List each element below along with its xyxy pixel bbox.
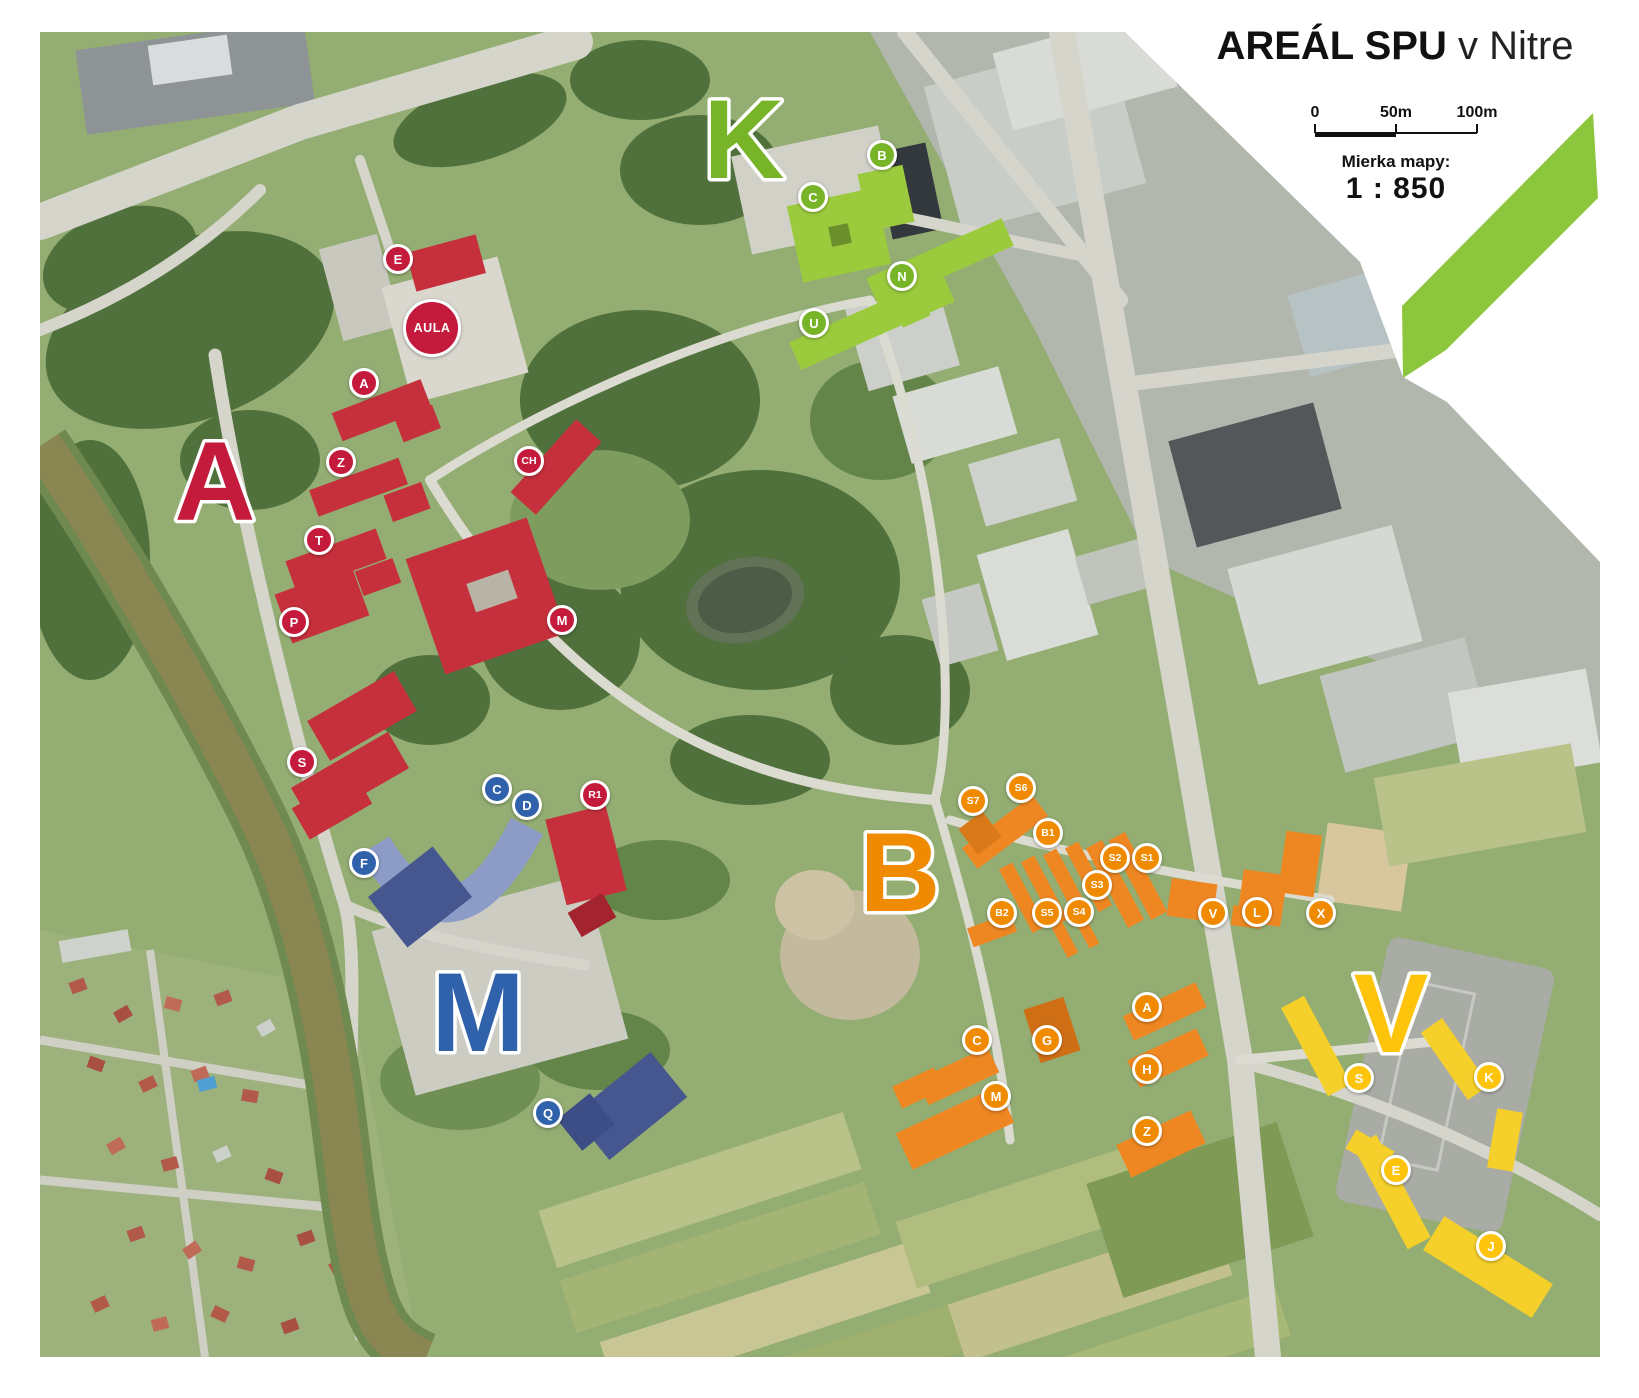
scale-ratio: 1 : 850: [1315, 172, 1477, 206]
map-marker-orange-G[interactable]: G: [1032, 1025, 1062, 1055]
map-marker-red-Z[interactable]: Z: [326, 447, 356, 477]
title-bold: AREÁL SPU: [1216, 24, 1446, 68]
map-marker-blue-D[interactable]: D: [512, 790, 542, 820]
map-marker-orange-S5[interactable]: S5: [1032, 898, 1062, 928]
map-marker-blue-F[interactable]: F: [349, 848, 379, 878]
map-marker-red-M[interactable]: M: [547, 605, 577, 635]
map-marker-orange-B2[interactable]: B2: [987, 898, 1017, 928]
map-marker-red-AULA[interactable]: AULA: [403, 299, 461, 357]
map-marker-blue-Q[interactable]: Q: [533, 1098, 563, 1128]
scale-label-50: 50m: [1380, 104, 1412, 122]
title-block: AREÁL SPU v Nitre: [1180, 24, 1610, 68]
map-marker-red-P[interactable]: P: [279, 607, 309, 637]
section-letter-A: A: [175, 419, 256, 544]
map-marker-orange-M[interactable]: M: [981, 1081, 1011, 1111]
map-marker-orange-S2[interactable]: S2: [1100, 843, 1130, 873]
map-marker-red-T[interactable]: T: [304, 525, 334, 555]
map-marker-orange-X[interactable]: X: [1306, 898, 1336, 928]
map-marker-orange-S1[interactable]: S1: [1132, 843, 1162, 873]
map-marker-green-N[interactable]: N: [887, 261, 917, 291]
page-title: AREÁL SPU v Nitre: [1180, 24, 1610, 68]
map-marker-red-S[interactable]: S: [287, 747, 317, 777]
section-letter-V: V: [1354, 951, 1429, 1076]
map-marker-orange-S7[interactable]: S7: [958, 786, 988, 816]
section-letter-B: B: [860, 810, 941, 935]
section-letter-M: M: [431, 950, 524, 1075]
map-marker-yellow-S[interactable]: S: [1344, 1063, 1374, 1093]
map-marker-orange-S4[interactable]: S4: [1064, 897, 1094, 927]
map-marker-red-CH[interactable]: CH: [514, 446, 544, 476]
campus-map-poster: AKBMV EAULAAZCHTPMSR1CDFQBCNUS7S6B1S2S1S…: [0, 0, 1639, 1398]
map-marker-green-C[interactable]: C: [798, 182, 828, 212]
map-marker-orange-A[interactable]: A: [1132, 992, 1162, 1022]
map-marker-green-U[interactable]: U: [799, 308, 829, 338]
map-marker-yellow-J[interactable]: J: [1476, 1231, 1506, 1261]
scale-label-0: 0: [1311, 104, 1320, 122]
map-marker-orange-C[interactable]: C: [962, 1025, 992, 1055]
map-marker-yellow-K[interactable]: K: [1474, 1062, 1504, 1092]
map-marker-red-A[interactable]: A: [349, 368, 379, 398]
map-marker-yellow-E[interactable]: E: [1381, 1155, 1411, 1185]
map-marker-orange-L[interactable]: L: [1242, 897, 1272, 927]
scale-label-100: 100m: [1457, 104, 1498, 122]
map-marker-orange-S6[interactable]: S6: [1006, 773, 1036, 803]
map-marker-orange-Z[interactable]: Z: [1132, 1116, 1162, 1146]
scale-bar: 0 50m 100m: [1315, 104, 1477, 140]
map-marker-green-B[interactable]: B: [867, 140, 897, 170]
title-rest: v Nitre: [1447, 24, 1574, 68]
map-marker-orange-H[interactable]: H: [1132, 1054, 1162, 1084]
scale-caption: Mierka mapy:: [1315, 152, 1477, 172]
map-marker-red-E[interactable]: E: [383, 244, 413, 274]
map-marker-red-R1[interactable]: R1: [580, 780, 610, 810]
section-letter-K: K: [704, 77, 785, 202]
map-marker-orange-V[interactable]: V: [1198, 898, 1228, 928]
map-marker-blue-C[interactable]: C: [482, 774, 512, 804]
map-marker-orange-B1[interactable]: B1: [1033, 818, 1063, 848]
map-marker-orange-S3[interactable]: S3: [1082, 870, 1112, 900]
